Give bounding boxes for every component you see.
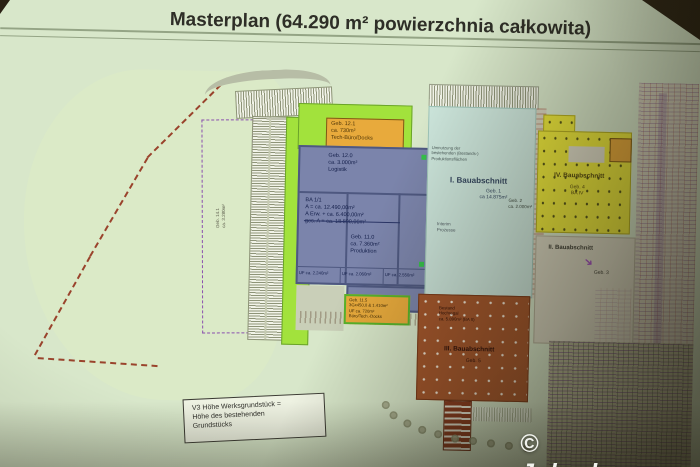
building-geb-12-1: Geb. 12.1 ca. 730m² Tech-Büro/Docks xyxy=(326,118,405,150)
geb-11-5-label: Geb. 11.5 3Gx450,0 & 1.410m² UF ca. 720m… xyxy=(346,296,409,320)
ba4-sub: Geb. 4 BA IV xyxy=(570,184,585,197)
tree-icon xyxy=(487,439,495,447)
tree-icon xyxy=(469,437,477,445)
reserve-area-dashed: Geb. 14.1 ca. 3.280m² xyxy=(201,119,254,333)
ba1-label: I. Bauabschnitt xyxy=(450,175,508,186)
slide-content: Masterplan (64.290 m² powierzchnia całko… xyxy=(0,0,700,467)
projection-photo: Masterplan (64.290 m² powierzchnia całko… xyxy=(0,0,700,467)
ba1-note: Umnutzung der bestehenden (Bestands-) Pr… xyxy=(431,145,491,162)
ba2-hatch xyxy=(594,288,631,343)
parking-lane-divider xyxy=(264,117,271,339)
geb-12-0-label: Geb. 12.0 ca. 3.000m² Logistik xyxy=(328,153,358,174)
dock-structure xyxy=(443,400,472,451)
geb-12-1-label: Geb. 12.1 ca. 730m² Tech-Büro/Docks xyxy=(327,119,404,145)
uf-cell: UF ca. 2.060m² xyxy=(341,268,384,284)
ba4-label: IV. Bauabschnitt xyxy=(554,172,604,181)
ba2-sub: Geb. 3 xyxy=(594,270,609,277)
marker-dot xyxy=(419,262,424,267)
uf-cell: UF ca. 2.240m² xyxy=(298,267,341,283)
projected-slide: Masterplan (64.290 m² powierzchnia całko… xyxy=(0,0,700,467)
ba1-sub: Geb. 1 ca 14.875m² xyxy=(479,188,507,201)
ba4-notch xyxy=(568,146,604,163)
tree-icon xyxy=(434,430,442,438)
ba3-note: Bestand Hochregal ca. 5.890m² (BA II) xyxy=(439,305,475,322)
watermark: © Jelonka.com xyxy=(520,430,700,467)
building-ba3: Bestand Hochregal ca. 5.890m² (BA II) II… xyxy=(416,294,530,403)
legend-box: V3 Höhe Werksgrundstück = Höhe des beste… xyxy=(183,393,327,444)
geb-2-label: Geb. 2 ca. 2.000m² xyxy=(508,198,532,210)
building-ba2: II. Bauabschnitt ➜ Geb. 3 xyxy=(533,235,635,345)
tree-icon xyxy=(418,426,426,434)
ba1-interim: Interim Prozesse xyxy=(437,221,456,233)
geb-11-0-label: Geb. 11.0 ca. 7.360m² Produktion xyxy=(350,234,380,255)
dock-apron xyxy=(471,407,531,422)
uf-row: UF ca. 2.240m² UF ca. 2.060m² UF ca. 2.5… xyxy=(298,266,426,285)
ba3-label: III. Bauabschnitt xyxy=(444,345,494,354)
ba3-sub: Geb. 5 xyxy=(466,358,481,365)
building-blue-main: Geb. 12.0 ca. 3.000m² Logistik BA 1/1 A … xyxy=(296,145,431,287)
tree-icon xyxy=(403,419,411,427)
loading-apron xyxy=(295,285,344,331)
tree-icon xyxy=(389,411,397,419)
ba2-label: II. Bauabschnitt xyxy=(548,245,593,254)
arrow-icon: ➜ xyxy=(581,254,597,270)
tree-icon xyxy=(382,401,390,409)
legend-text: V3 Höhe Werksgrundstück = Höhe des beste… xyxy=(184,394,326,437)
reserve-area-label: Geb. 14.1 ca. 3.280m² xyxy=(215,204,226,228)
uf-cell: UF ca. 2.550m² xyxy=(384,269,426,285)
marker-dot xyxy=(421,155,426,160)
building-ba4-orange-box xyxy=(609,138,632,162)
blue-divider-h xyxy=(300,191,428,195)
building-geb-11-5: Geb. 11.5 3Gx450,0 & 1.410m² UF ca. 720m… xyxy=(344,294,411,325)
tree-icon xyxy=(505,442,513,450)
